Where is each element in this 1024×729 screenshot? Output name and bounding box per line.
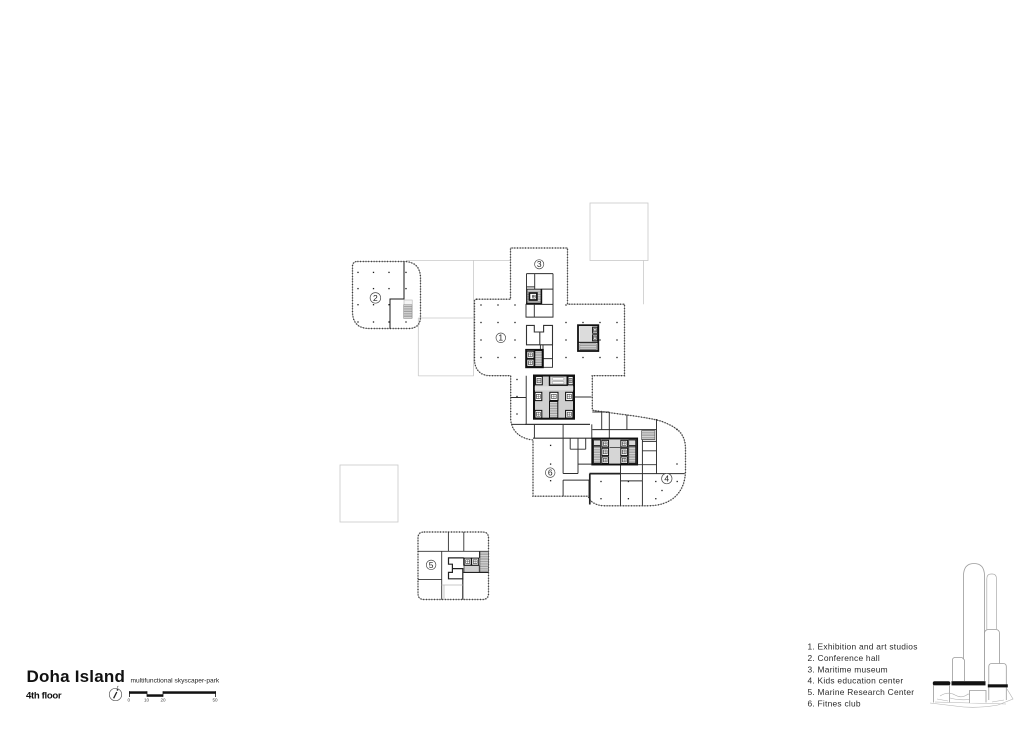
svg-text:6. Fitnes club: 6. Fitnes club — [808, 699, 861, 709]
svg-text:1. Exhibition and art studios: 1. Exhibition and art studios — [808, 642, 918, 652]
svg-text:5: 5 — [429, 560, 434, 570]
svg-text:1: 1 — [498, 333, 503, 343]
svg-text:20: 20 — [161, 698, 167, 703]
svg-text:0: 0 — [128, 698, 131, 703]
svg-text:5. Marine Research Center: 5. Marine Research Center — [808, 687, 915, 697]
svg-text:2. Conference hall: 2. Conference hall — [808, 653, 880, 663]
svg-text:Doha Island: Doha Island — [27, 667, 126, 686]
svg-text:3. Maritime museum: 3. Maritime museum — [808, 664, 888, 674]
svg-text:2: 2 — [373, 293, 378, 303]
svg-text:4th floor: 4th floor — [26, 690, 62, 701]
svg-text:4: 4 — [664, 474, 669, 484]
svg-text:multifunctional skyscaper-park: multifunctional skyscaper-park — [131, 678, 220, 685]
svg-text:50: 50 — [213, 698, 219, 703]
svg-text:3: 3 — [537, 259, 542, 269]
svg-text:4. Kids education center: 4. Kids education center — [808, 676, 904, 686]
svg-text:10: 10 — [144, 698, 150, 703]
svg-text:6: 6 — [548, 468, 553, 478]
